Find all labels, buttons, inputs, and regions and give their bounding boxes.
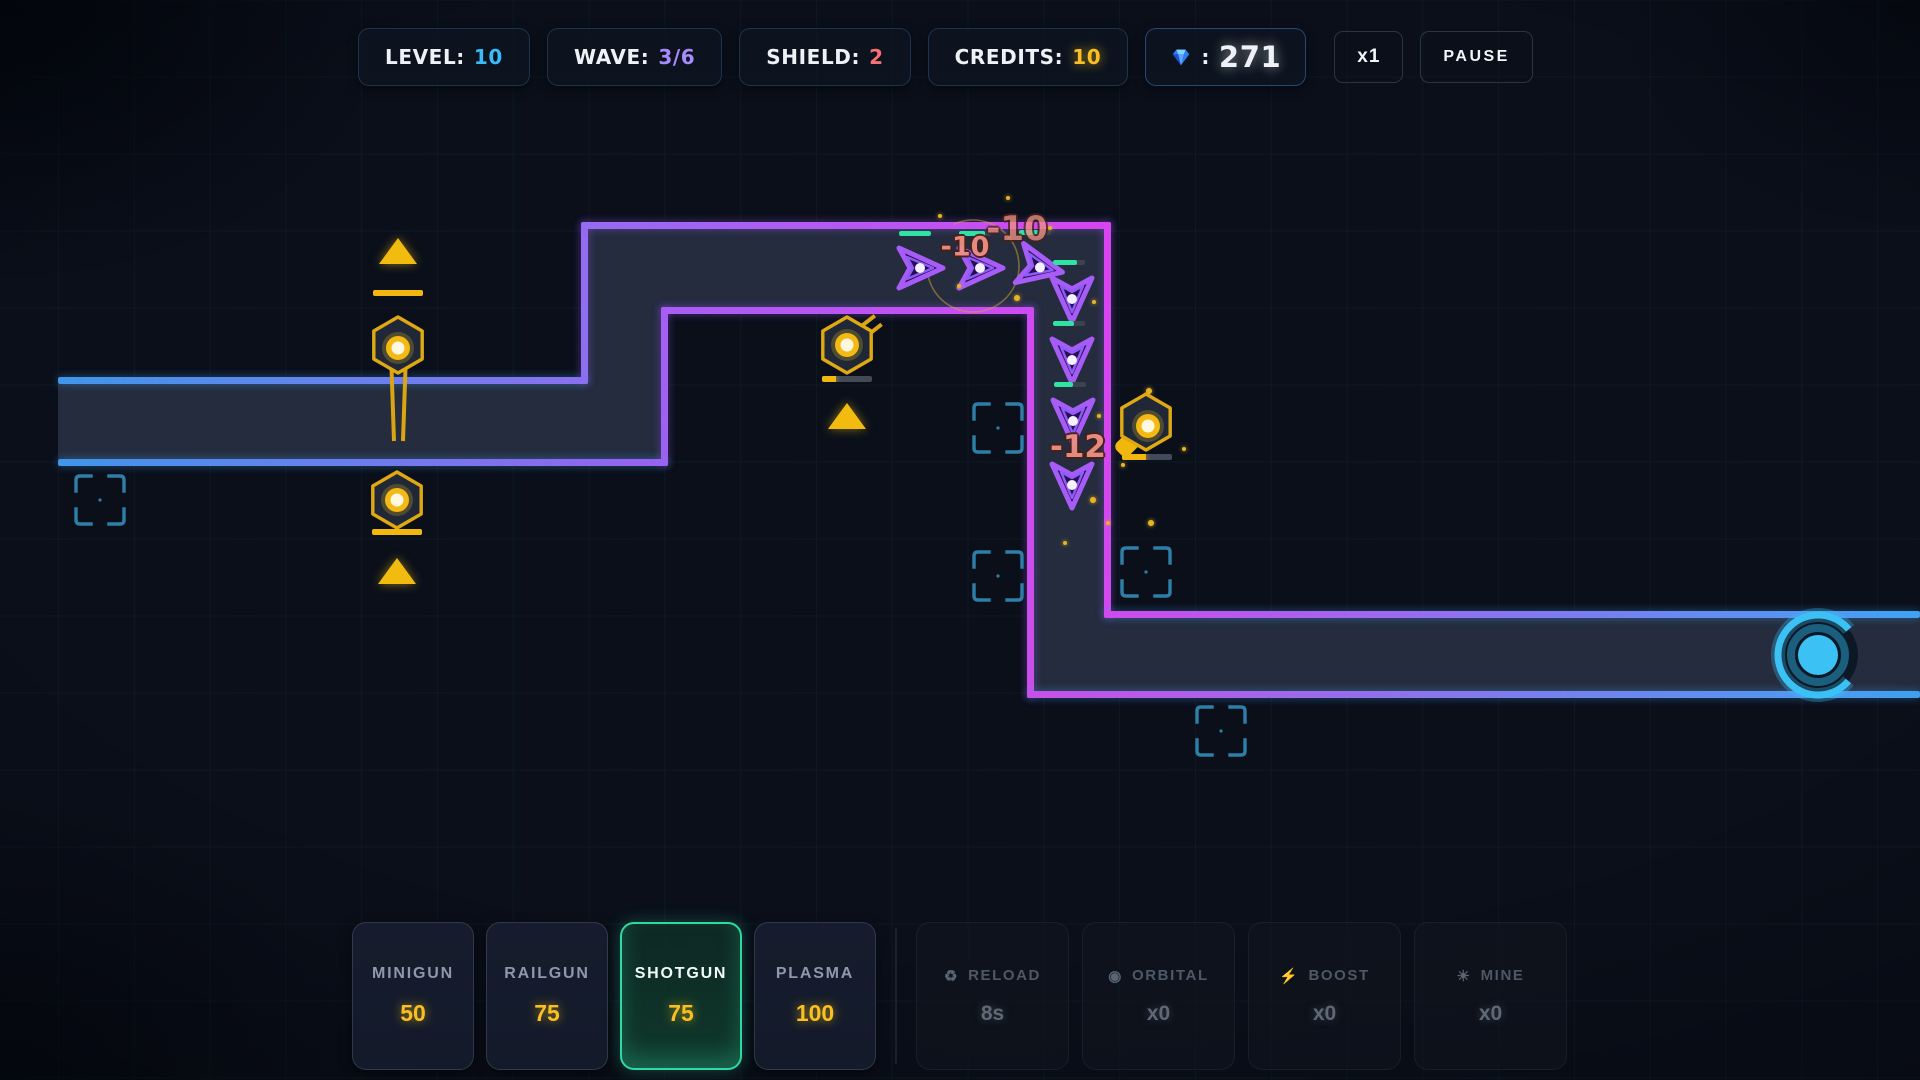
empty-tower-slot[interactable] — [1193, 703, 1249, 759]
path-border — [58, 377, 588, 384]
spark-particle — [1063, 541, 1067, 545]
pause-button[interactable]: PAUSE — [1420, 31, 1532, 83]
shop-button-railgun[interactable]: RAILGUN 75 — [486, 922, 608, 1070]
tower-ammo-bar — [822, 376, 872, 382]
empty-tower-slot[interactable] — [970, 400, 1026, 456]
tower-cost: 50 — [400, 1000, 426, 1027]
ability-value: 8s — [981, 1002, 1004, 1026]
shield-badge: SHIELD: 2 — [739, 28, 910, 86]
shop-divider — [895, 928, 897, 1064]
tower-cost: 75 — [534, 1000, 560, 1027]
game-stage: -10-10-12 LEVEL: 10 WAVE: 3/6 SHIELD: 2 … — [0, 0, 1920, 1080]
wave-label: WAVE: — [574, 45, 649, 69]
credits-badge: CREDITS: 10 — [928, 28, 1129, 86]
tower-name: MINIGUN — [372, 965, 454, 983]
ability-value: x0 — [1313, 1002, 1336, 1026]
shop-button-shotgun[interactable]: SHOTGUN 75 — [620, 922, 742, 1070]
spark-particle — [1092, 300, 1096, 304]
gem-icon — [1170, 46, 1192, 68]
path-border — [581, 223, 588, 384]
tower-upgrade-triangle — [828, 403, 866, 429]
ability-name: ORBITAL — [1132, 967, 1209, 984]
ability-value: x0 — [1479, 1002, 1502, 1026]
tower-name: PLASMA — [776, 965, 854, 983]
spark-particle — [1106, 521, 1110, 525]
credits-value: 10 — [1072, 45, 1101, 69]
credits-label: CREDITS: — [955, 45, 1064, 69]
tower-cost: 100 — [796, 1000, 834, 1027]
path-border — [1027, 307, 1034, 698]
tower-ammo-bar — [373, 290, 423, 296]
tower-upgrade-triangle — [378, 558, 416, 584]
spark-particle — [1148, 520, 1154, 526]
tower-cost: 75 — [668, 1000, 694, 1027]
spark-particle — [1048, 226, 1052, 230]
shop-button-minigun[interactable]: MINIGUN 50 — [352, 922, 474, 1070]
spark-particle — [1182, 447, 1186, 451]
level-label: LEVEL: — [385, 45, 465, 69]
tower-upgrade-triangle — [379, 238, 417, 264]
exit-portal — [1768, 605, 1868, 705]
path-connector-segment — [586, 307, 661, 384]
empty-tower-slot[interactable] — [1118, 544, 1174, 600]
spark-particle — [1097, 414, 1101, 418]
damage-number: -10 — [986, 209, 1047, 249]
hud-bar: LEVEL: 10 WAVE: 3/6 SHIELD: 2 CREDITS: 1… — [358, 28, 1533, 86]
spark-particle — [1006, 196, 1010, 200]
orbital-icon: ◉ — [1108, 967, 1123, 985]
shield-label: SHIELD: — [766, 45, 860, 69]
tower-shop: MINIGUN 50 RAILGUN 75 SHOTGUN 75 PLASMA … — [352, 922, 876, 1070]
gems-value: 271 — [1219, 40, 1281, 74]
enemy-health-bar — [1054, 382, 1086, 387]
wave-value: 3/6 — [658, 45, 695, 69]
shield-value: 2 — [869, 45, 884, 69]
enemy-health-bar — [1053, 260, 1085, 265]
tower-name: SHOTGUN — [635, 965, 728, 983]
ability-name: RELOAD — [968, 967, 1041, 984]
spark-particle — [957, 284, 961, 288]
enemy-health-bar — [899, 231, 931, 236]
ability-button-reload[interactable]: ♻RELOAD 8s — [916, 922, 1069, 1070]
empty-tower-slot[interactable] — [72, 472, 128, 528]
tower-ammo-bar — [1122, 454, 1172, 460]
spark-particle — [938, 214, 942, 218]
enemy-health-bar — [1053, 321, 1085, 326]
spark-particle — [1090, 497, 1096, 503]
boost-icon: ⚡ — [1279, 967, 1299, 985]
spark-particle — [1146, 388, 1152, 394]
gems-badge: : 271 — [1145, 28, 1306, 86]
ability-name: MINE — [1481, 967, 1525, 984]
speed-button[interactable]: x1 — [1334, 31, 1403, 83]
damage-number: -10 — [941, 232, 990, 263]
tower[interactable] — [338, 283, 458, 453]
background-grid — [0, 0, 1920, 1080]
spark-particle — [1014, 295, 1020, 301]
ability-name: BOOST — [1308, 967, 1369, 984]
spark-particle — [1121, 463, 1125, 467]
ability-button-orbital[interactable]: ◉ORBITAL x0 — [1082, 922, 1235, 1070]
damage-number: -12 — [1050, 429, 1106, 465]
tower-ammo-bar — [372, 529, 422, 535]
empty-tower-slot[interactable] — [970, 548, 1026, 604]
ability-value: x0 — [1147, 1002, 1170, 1026]
gems-separator: : — [1201, 45, 1210, 69]
level-badge: LEVEL: 10 — [358, 28, 530, 86]
level-value: 10 — [474, 45, 503, 69]
ability-button-mine[interactable]: ☀MINE x0 — [1414, 922, 1567, 1070]
ability-bar: ♻RELOAD 8s ◉ORBITAL x0 ⚡BOOST x0 ☀MINE x… — [916, 922, 1567, 1070]
wave-badge: WAVE: 3/6 — [547, 28, 722, 86]
reload-icon: ♻ — [944, 967, 959, 985]
mine-icon: ☀ — [1457, 967, 1472, 985]
tower-name: RAILGUN — [504, 965, 589, 983]
enemy-ship — [1042, 267, 1102, 327]
path-border — [661, 307, 668, 466]
ability-button-boost[interactable]: ⚡BOOST x0 — [1248, 922, 1401, 1070]
shop-button-plasma[interactable]: PLASMA 100 — [754, 922, 876, 1070]
